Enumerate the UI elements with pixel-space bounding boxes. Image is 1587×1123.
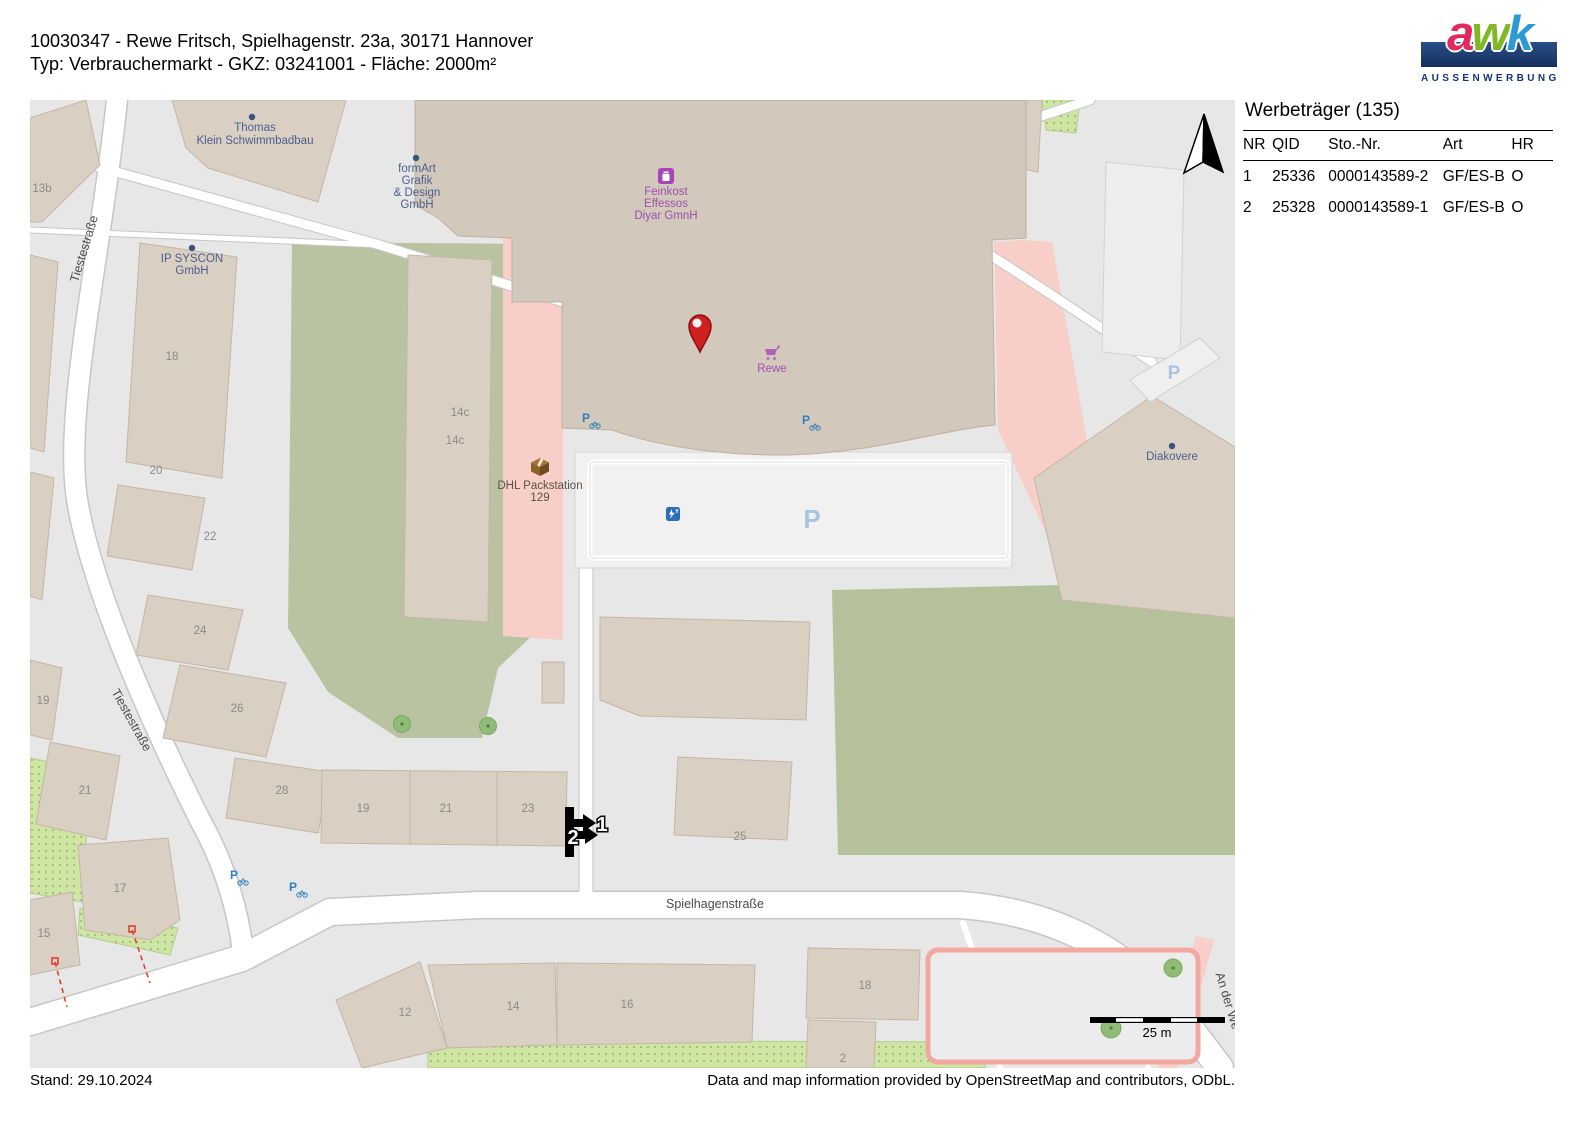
building xyxy=(163,665,286,757)
poi-dot xyxy=(249,114,255,120)
col-header-art: Art xyxy=(1443,131,1512,161)
house-number: 2 xyxy=(840,1053,846,1065)
cell-sto: 0000143589-1 xyxy=(1328,192,1442,223)
cell-art: GF/ES-B xyxy=(1443,161,1512,193)
street-label-spielhagenstrasse: Spielhagenstraße xyxy=(666,897,764,911)
house-number: 16 xyxy=(621,999,634,1011)
col-header-qid: QID xyxy=(1272,131,1328,161)
marker-1-label[interactable]: 1 xyxy=(596,814,607,836)
poi-dot xyxy=(1169,443,1175,449)
poi-rewe: Rewe xyxy=(757,363,786,375)
poi-dhl-packstation: 129 xyxy=(530,492,549,504)
poi-feinkost: Feinkost xyxy=(644,186,688,198)
house-number: 22 xyxy=(204,531,217,543)
col-header-sto: Sto.-Nr. xyxy=(1328,131,1442,161)
building xyxy=(30,100,100,222)
poi-diakovere: Diakovere xyxy=(1146,451,1198,463)
tree-icon xyxy=(394,716,411,733)
svg-text:P: P xyxy=(582,411,590,425)
school-yard xyxy=(928,950,1198,1062)
house-number: 21 xyxy=(79,785,92,797)
svg-text:P: P xyxy=(289,880,297,894)
poi-formart: Grafik xyxy=(402,175,433,187)
house-number: 15 xyxy=(38,928,51,940)
cell-hr: O xyxy=(1511,161,1553,193)
building xyxy=(30,472,54,600)
bicycle-parking-icon: P xyxy=(289,880,307,897)
house-number: 19 xyxy=(37,695,50,707)
page: 10030347 - Rewe Fritsch, Spielhagenstr. … xyxy=(0,0,1587,1123)
house-number: 17 xyxy=(114,883,127,895)
house-number: 14 xyxy=(507,1001,520,1013)
building xyxy=(336,962,447,1068)
house-number: 20 xyxy=(150,465,163,477)
house-number: 25 xyxy=(734,831,747,843)
logo-subtitle: AUSSENWERBUNG xyxy=(1421,73,1558,84)
green-large xyxy=(832,585,1235,855)
cell-nr: 1 xyxy=(1243,161,1272,193)
poi-formart: formArt xyxy=(398,163,437,175)
house-number: 14c xyxy=(446,435,465,447)
poi-ip-syscon: GmbH xyxy=(175,265,208,277)
parking-lot xyxy=(575,452,1012,568)
map-canvas[interactable]: Tiestestraße Tiestestraße Spielhagenstra… xyxy=(30,100,1235,1068)
cell-hr: O xyxy=(1511,192,1553,223)
logo-letter-w: w xyxy=(1471,7,1506,61)
building xyxy=(674,757,792,840)
poi-feinkost: Diyar GmnH xyxy=(634,210,697,222)
col-header-nr: NR xyxy=(1243,131,1272,161)
cell-sto: 0000143589-2 xyxy=(1328,161,1442,193)
header-subtitle: Typ: Verbrauchermarkt - GKZ: 03241001 - … xyxy=(30,53,533,76)
building xyxy=(542,662,564,703)
poi-formart: & Design xyxy=(394,187,441,199)
house-number: 24 xyxy=(194,625,207,637)
company-logo: awk AUSSENWERBUNG xyxy=(1421,20,1558,86)
parking-p-icon: P xyxy=(1168,363,1181,384)
house-number: 12 xyxy=(399,1007,412,1019)
map-attribution: Data and map information provided by Ope… xyxy=(600,1072,1235,1089)
house-number: 26 xyxy=(231,703,244,715)
house-number: 19 xyxy=(357,803,370,815)
poi-formart: GmbH xyxy=(400,199,433,211)
poi-dot xyxy=(413,155,419,161)
table-row[interactable]: 2 25328 0000143589-1 GF/ES-B O xyxy=(1243,192,1553,223)
tree-icon xyxy=(480,718,497,735)
building xyxy=(557,963,755,1045)
status-date: Stand: 29.10.2024 xyxy=(30,1072,153,1089)
house-number: 23 xyxy=(522,803,535,815)
ev-charging-icon xyxy=(666,507,680,521)
building xyxy=(136,595,243,670)
poi-ip-syscon: IP SYSCON xyxy=(161,253,223,265)
building xyxy=(126,243,237,478)
marker-2-label[interactable]: 2 xyxy=(567,827,578,849)
map[interactable]: Tiestestraße Tiestestraße Spielhagenstra… xyxy=(30,100,1235,1068)
poi-feinkost: Effessos xyxy=(644,198,688,210)
werbetraeger-panel: Werbeträger (135) NR QID Sto.-Nr. Art HR… xyxy=(1243,100,1563,223)
svg-text:P: P xyxy=(230,868,238,882)
logo-letter-k: k xyxy=(1507,7,1531,61)
cell-nr: 2 xyxy=(1243,192,1272,223)
table-row[interactable]: 1 25336 0000143589-2 GF/ES-B O xyxy=(1243,161,1553,193)
logo-letter-a: a xyxy=(1447,7,1471,61)
building xyxy=(1102,162,1184,360)
tree-icon xyxy=(1164,959,1182,977)
house-number: 28 xyxy=(276,785,289,797)
building xyxy=(78,838,180,940)
poi-thomas: Thomas xyxy=(234,122,276,134)
building xyxy=(428,963,557,1048)
col-header-hr: HR xyxy=(1511,131,1553,161)
shop-icon xyxy=(658,168,674,184)
header: 10030347 - Rewe Fritsch, Spielhagenstr. … xyxy=(30,30,533,76)
header-title: 10030347 - Rewe Fritsch, Spielhagenstr. … xyxy=(30,30,533,53)
house-number: 18 xyxy=(859,980,872,992)
panel-title: Werbeträger (135) xyxy=(1245,100,1563,122)
svg-text:P: P xyxy=(802,413,810,427)
building xyxy=(30,255,58,452)
house-number: 14c xyxy=(451,407,470,419)
cell-qid: 25328 xyxy=(1272,192,1328,223)
werbetraeger-table: NR QID Sto.-Nr. Art HR 1 25336 000014358… xyxy=(1243,131,1553,223)
poi-dhl-packstation: DHL Packstation xyxy=(497,480,582,492)
scale-label: 25 m xyxy=(1143,1025,1172,1040)
logo-word: awk xyxy=(1421,6,1557,62)
cell-art: GF/ES-B xyxy=(1443,192,1512,223)
cell-qid: 25336 xyxy=(1272,161,1328,193)
house-number: 21 xyxy=(440,803,453,815)
poi-thomas: Klein Schwimmbadbau xyxy=(197,135,314,147)
house-number: 18 xyxy=(166,351,179,363)
poi-dot xyxy=(189,245,195,251)
building xyxy=(600,617,810,720)
building xyxy=(172,100,346,202)
north-arrow-icon xyxy=(1184,114,1223,173)
building xyxy=(107,485,205,570)
house-number: 13b xyxy=(32,183,51,195)
parking-p-icon: P xyxy=(803,504,820,534)
